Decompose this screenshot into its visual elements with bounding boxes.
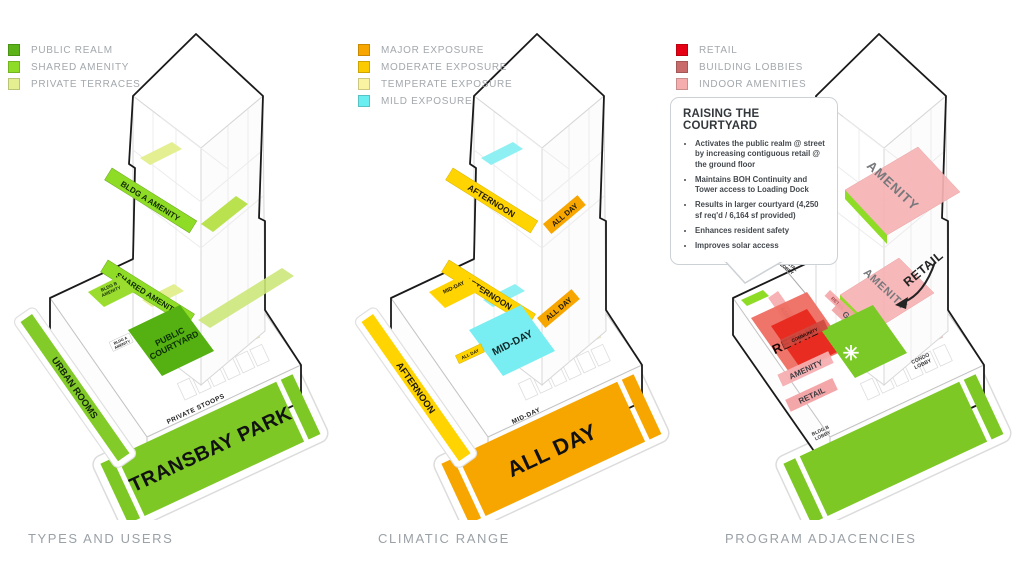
- star-icon: ✳: [843, 343, 860, 365]
- legend-item: MAJOR EXPOSURE: [358, 44, 512, 56]
- legend-program-adjacencies: RETAIL BUILDING LOBBIES INDOOR AMENITIES: [676, 44, 806, 90]
- callout-bullet-list: Activates the public realm @ street by i…: [683, 139, 827, 252]
- legend-item: INDOOR AMENITIES: [676, 78, 806, 90]
- legend-item: MODERATE EXPOSURE: [358, 61, 512, 73]
- caption-types-and-users: TYPES AND USERS: [28, 531, 173, 546]
- moderate-exposure-swatch: [358, 61, 370, 73]
- building-lobbies-swatch: [676, 61, 688, 73]
- callout-bullet: Enhances resident safety: [695, 226, 827, 236]
- legend-item: PUBLIC REALM: [8, 44, 141, 56]
- legend-item: PRIVATE TERRACES: [8, 78, 141, 90]
- legend-item: MILD EXPOSURE: [358, 95, 512, 107]
- legend-item: RETAIL: [676, 44, 806, 56]
- callout-bullet: Activates the public realm @ street by i…: [695, 139, 827, 170]
- callout-bullet: Maintains BOH Continuity and Tower acces…: [695, 175, 827, 196]
- legend-item: SHARED AMENITY: [8, 61, 141, 73]
- callout-tail: [723, 261, 785, 285]
- indoor-amenities-swatch: [676, 78, 688, 90]
- callout-bullet: Results in larger courtyard (4,250 sf re…: [695, 200, 827, 221]
- callout-bullet: Improves solar access: [695, 241, 827, 251]
- mild-exposure-swatch: [358, 95, 370, 107]
- retail-swatch: [676, 44, 688, 56]
- caption-program-adjacencies: PROGRAM ADJACENCIES: [725, 531, 916, 546]
- caption-climatic-range: CLIMATIC RANGE: [378, 531, 510, 546]
- legend-item: TEMPERATE EXPOSURE: [358, 78, 512, 90]
- public-realm-swatch: [8, 44, 20, 56]
- legend-item: BUILDING LOBBIES: [676, 61, 806, 73]
- temperate-exposure-swatch: [358, 78, 370, 90]
- raising-the-courtyard-callout: RAISING THE COURTYARD Activates the publ…: [670, 97, 838, 265]
- legend-types-and-users: PUBLIC REALM SHARED AMENITY PRIVATE TERR…: [8, 44, 141, 90]
- legend-climatic-range: MAJOR EXPOSURE MODERATE EXPOSURE TEMPERA…: [358, 44, 512, 107]
- major-exposure-swatch: [358, 44, 370, 56]
- callout-title: RAISING THE COURTYARD: [683, 108, 827, 132]
- shared-amenity-swatch: [8, 61, 20, 73]
- private-terraces-swatch: [8, 78, 20, 90]
